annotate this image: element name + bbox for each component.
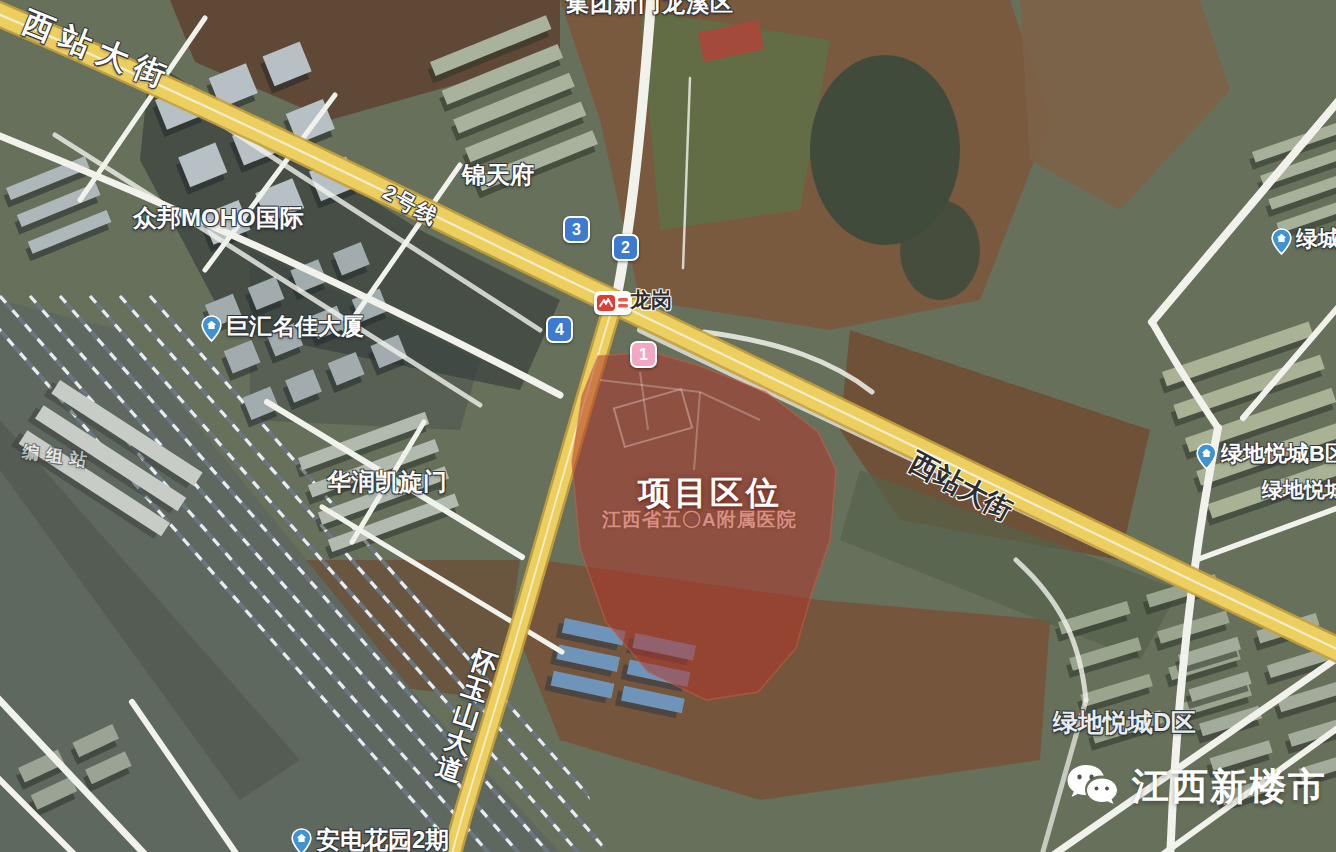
wechat-icon <box>1066 763 1122 811</box>
poi-label-jituan-longxi[interactable]: 集团新门龙溪区 <box>566 0 734 15</box>
metro-logo-icon <box>597 295 629 311</box>
watermark: 江西新楼市 <box>1066 762 1327 812</box>
poi-andian-garden[interactable]: 安电花园2期 <box>291 828 449 852</box>
building-pin-icon <box>291 828 312 852</box>
watermark-text: 江西新楼市 <box>1132 762 1327 812</box>
poi-label-andian: 安电花园2期 <box>316 828 449 852</box>
building-pin-icon <box>1271 228 1292 255</box>
building-pin-icon <box>201 315 222 342</box>
metro-exit-3-badge[interactable]: 3 <box>563 216 590 243</box>
metro-station-icon[interactable] <box>594 291 632 315</box>
poi-label-lvdi-partial[interactable]: 绿地悦城 <box>1262 479 1336 500</box>
poi-label-juhui: 巨汇名佳大厦 <box>226 315 364 338</box>
metro-line1-badge[interactable]: 1 <box>630 341 657 368</box>
poi-label-lvdi-yuecheng-d[interactable]: 绿地悦城D区 <box>1053 710 1196 735</box>
poi-label-zhongbang-moho[interactable]: 众邦MOHO国际 <box>133 206 304 230</box>
metro-exit-2-badge[interactable]: 2 <box>612 234 639 261</box>
poi-lvdi-yuecheng-b[interactable]: 绿地悦城B区 <box>1196 443 1336 470</box>
poi-label-huarun-arc[interactable]: 华润凯旋门 <box>327 470 447 494</box>
poi-lvcheng[interactable]: 绿城 <box>1271 228 1336 255</box>
poi-juhui-building[interactable]: 巨汇名佳大厦 <box>201 315 364 342</box>
metro-station-label[interactable]: 龙岗 <box>630 289 672 310</box>
metro-exit-4-badge[interactable]: 4 <box>546 316 573 343</box>
satellite-map-canvas[interactable]: 3 2 4 1 龙岗 西站大街 2号线 西站大街 怀玉山大道 集团新门龙溪区 众… <box>0 0 1336 852</box>
project-location-subtitle: 江西省五〇A附属医院 <box>602 510 797 529</box>
poi-label-lvcheng: 绿城 <box>1296 228 1336 250</box>
poi-label-lvdi-b: 绿地悦城B区 <box>1221 443 1336 465</box>
building-pin-icon <box>1196 443 1217 470</box>
poi-label-jintianfu[interactable]: 锦天府 <box>462 163 534 187</box>
project-location-title: 项目区位 <box>638 476 782 509</box>
